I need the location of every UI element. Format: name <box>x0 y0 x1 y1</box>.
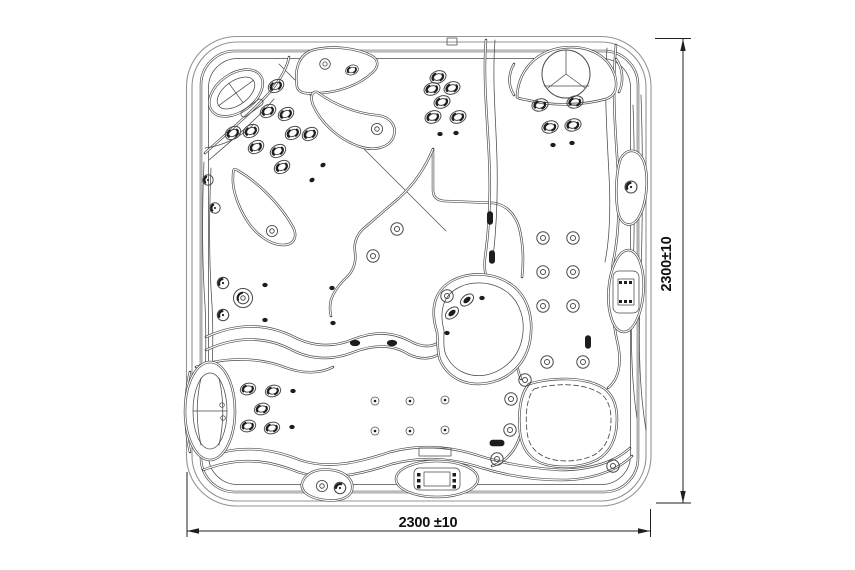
jet-cluster-top-center <box>422 69 468 137</box>
jet-cluster-bottom-left <box>239 381 296 435</box>
drawing-canvas: 2300 ±10 2300±10 <box>0 0 855 570</box>
headrest-speaker-top-left <box>201 60 272 126</box>
jet-grid-bottom-bench <box>371 396 449 435</box>
seat-teardrop-center <box>434 274 532 384</box>
dimension-right-label: 2300±10 <box>659 236 675 291</box>
seat-top-right-pillow <box>510 47 623 104</box>
corner-seat-bottom-right <box>519 379 617 467</box>
control-panel-right <box>606 249 647 333</box>
control-panel-bottom <box>396 448 478 497</box>
lounger-pillow-bottom-left <box>185 362 235 460</box>
hot-tub-technical-drawing: 2300 ±10 2300±10 <box>0 0 855 570</box>
dimension-bottom-label: 2300 ±10 <box>399 515 458 531</box>
diverter-island-bottom <box>302 470 353 501</box>
jet-grid-right-seat <box>537 232 589 368</box>
dimension-right: 2300±10 <box>655 39 691 504</box>
